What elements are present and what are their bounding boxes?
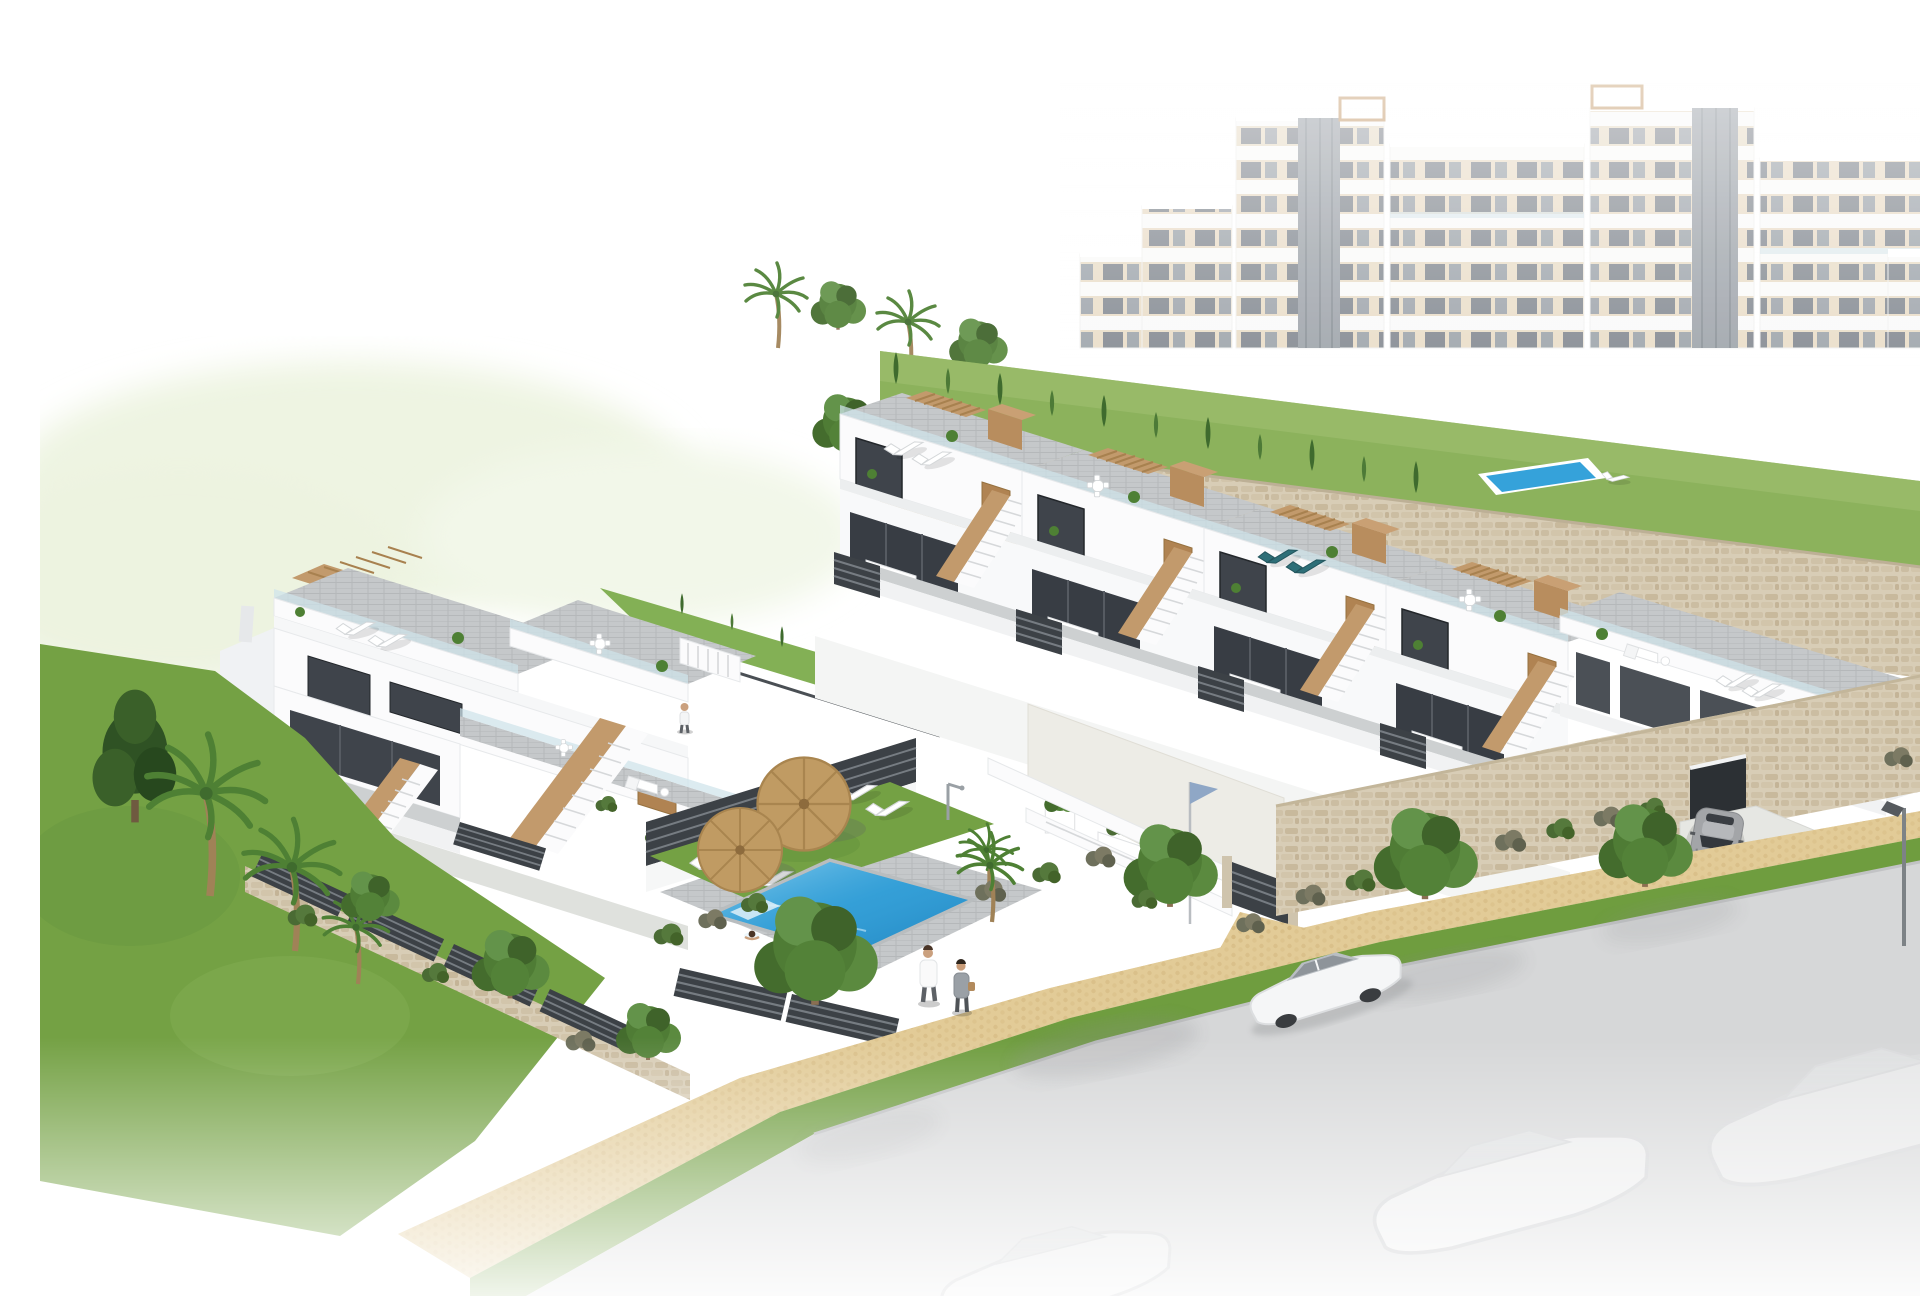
chimney: [239, 606, 254, 643]
walker-male: [918, 945, 940, 1008]
render-canvas: Aerial 3D render of a modern white resid…: [40, 16, 1920, 1296]
terrace-walker: [677, 703, 693, 735]
apartment-towers: [745, 76, 1920, 376]
palm-icon: [745, 263, 807, 348]
tree-icon: [811, 281, 866, 329]
haze-overlay: [1060, 76, 1920, 368]
walker-female: [952, 959, 975, 1017]
pedestrians: [918, 945, 975, 1017]
architectural-render: Photorealistic architectural visualizati…: [40, 16, 1920, 1296]
